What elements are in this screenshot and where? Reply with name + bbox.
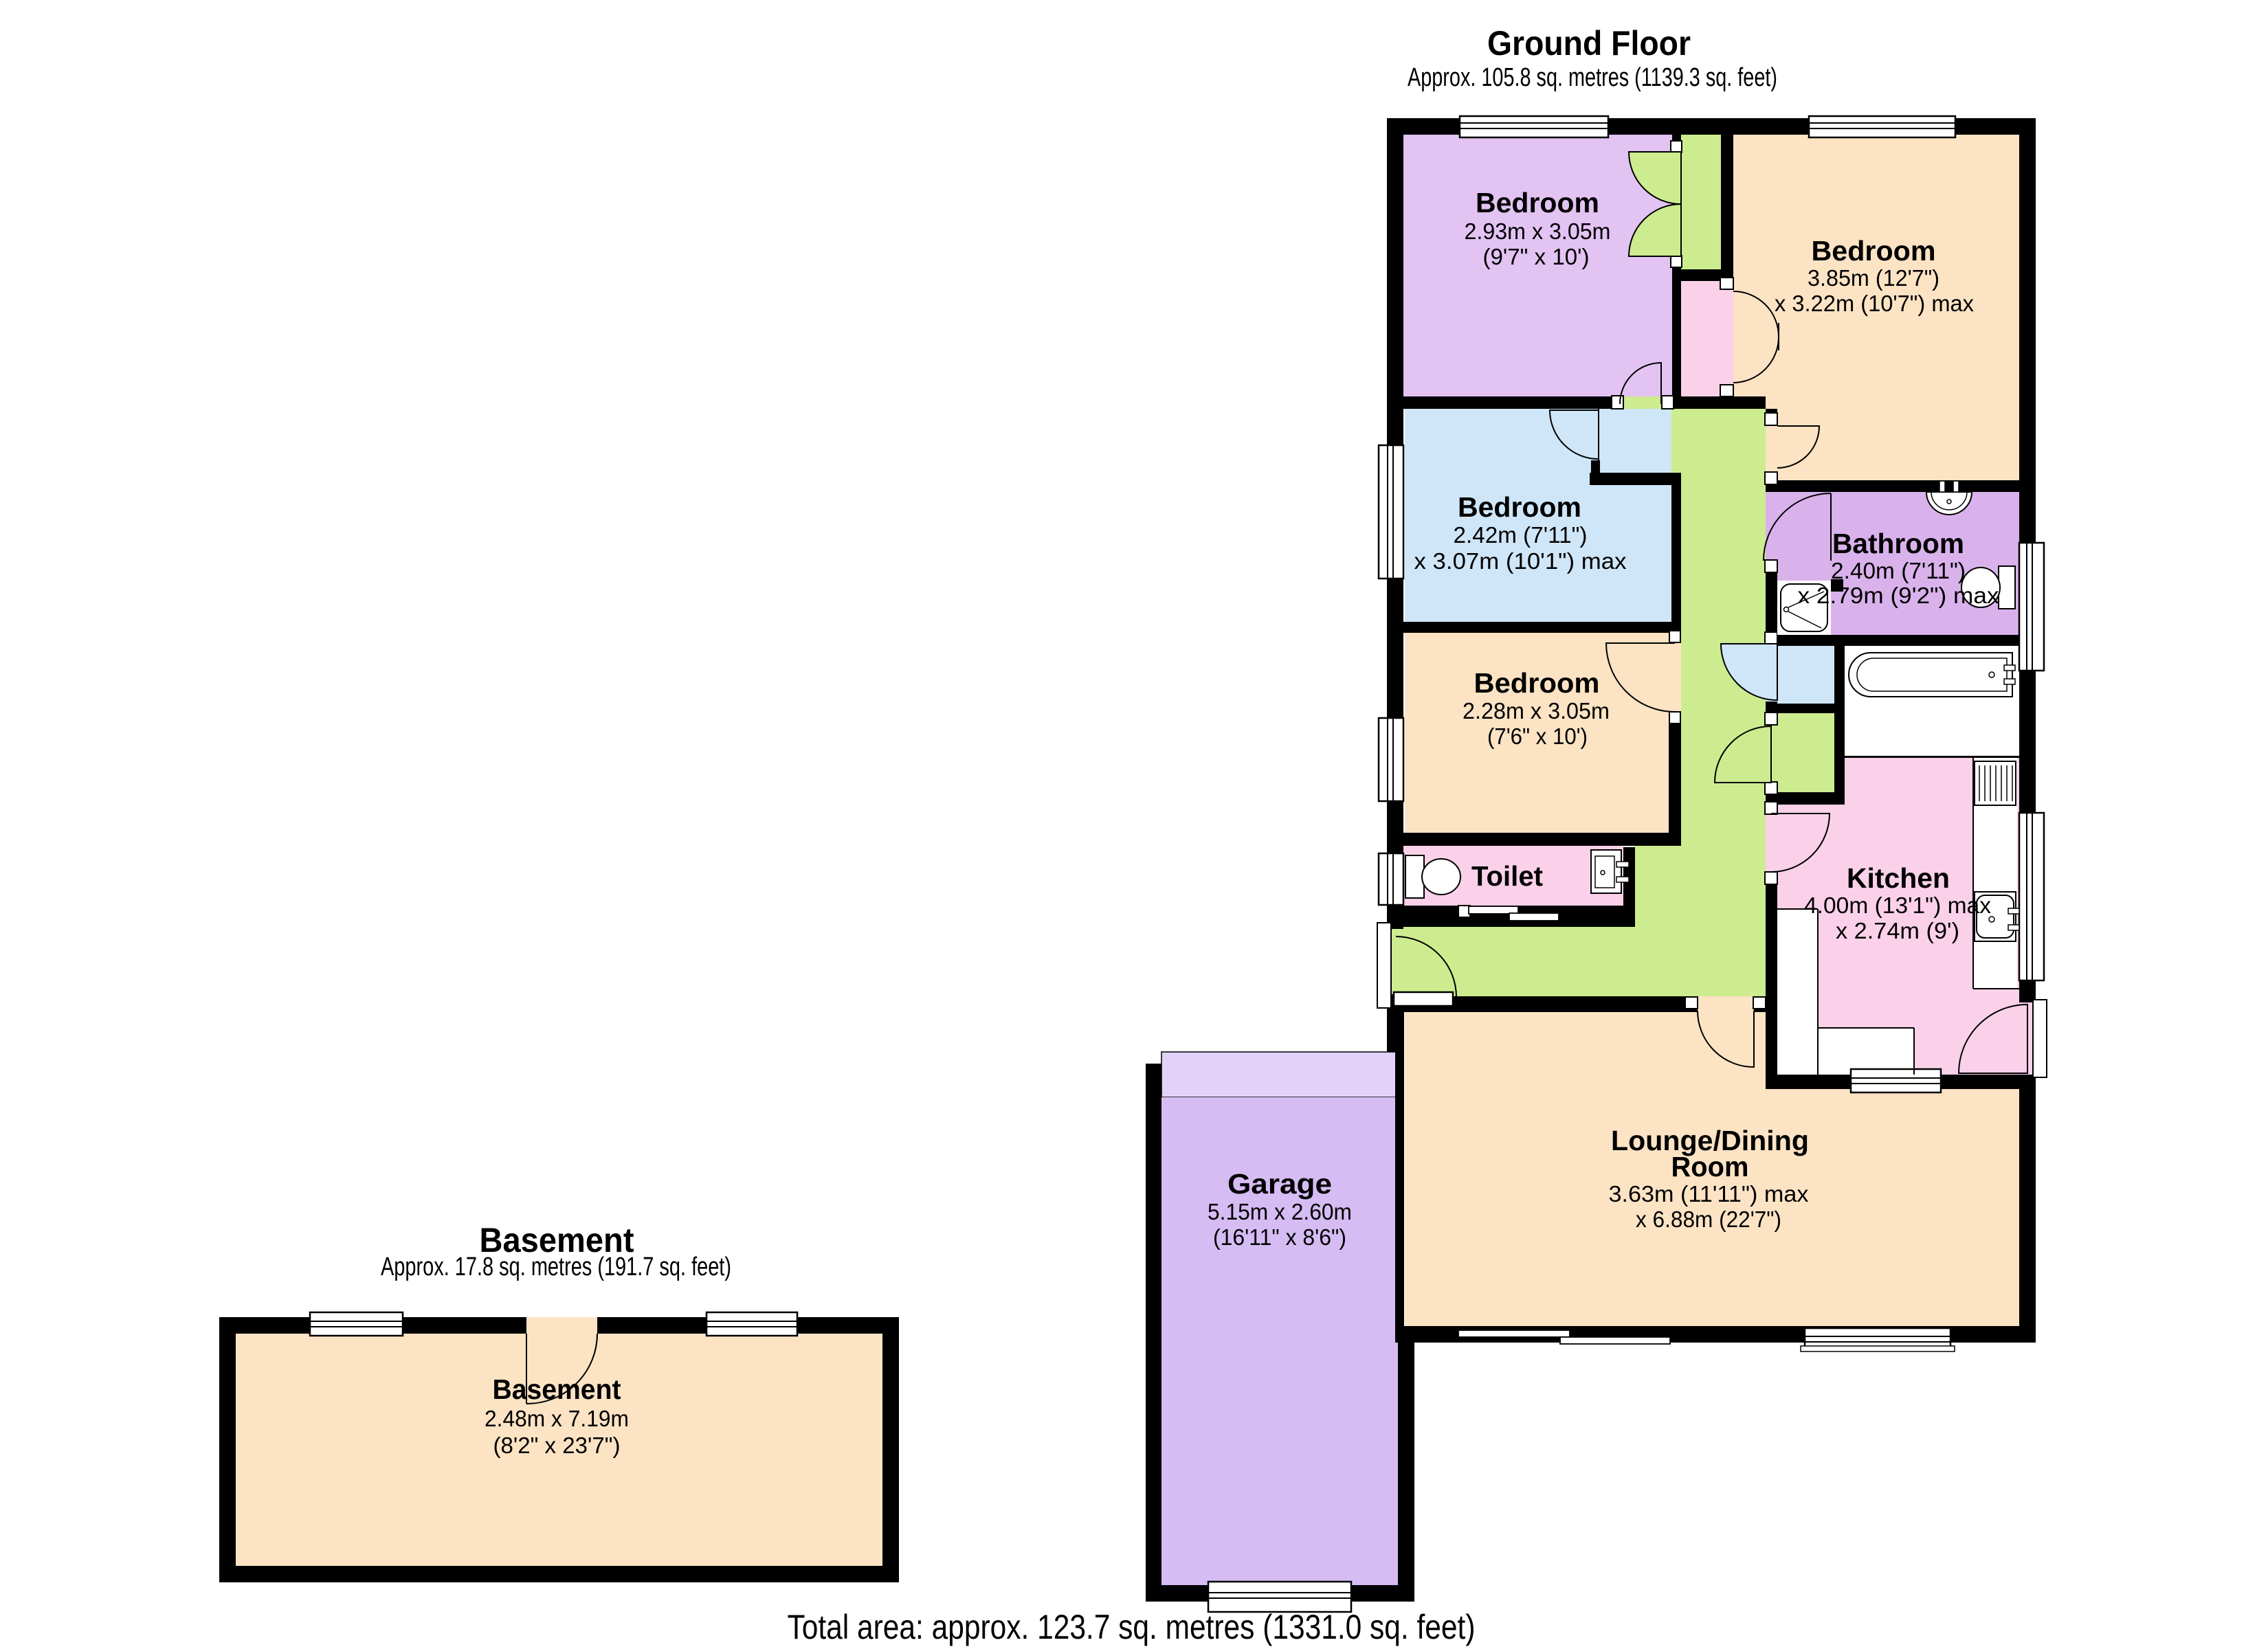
svg-text:4.00m (13'1") max: 4.00m (13'1") max [1804,893,1992,918]
svg-text:x 3.07m (10'1") max: x 3.07m (10'1") max [1414,548,1627,574]
svg-text:3.85m (12'7"): 3.85m (12'7") [1808,265,1939,291]
svg-text:x 6.88m (22'7"): x 6.88m (22'7") [1636,1207,1781,1232]
svg-text:Bedroom: Bedroom [1812,235,1936,267]
svg-text:Approx. 105.8 sq. metres (1139: Approx. 105.8 sq. metres (1139.3 sq. fee… [1408,63,1777,92]
svg-text:Toilet: Toilet [1471,860,1543,892]
svg-text:Bedroom: Bedroom [1476,187,1599,218]
svg-text:x 2.79m (9'2") max: x 2.79m (9'2") max [1798,583,2000,608]
svg-text:2.42m (7'11"): 2.42m (7'11") [1454,522,1588,548]
svg-text:3.63m (11'11") max: 3.63m (11'11") max [1609,1181,1810,1207]
svg-text:Approx. 17.8 sq. metres (191.7: Approx. 17.8 sq. metres (191.7 sq. feet) [381,1253,731,1281]
svg-text:2.93m x 3.05m: 2.93m x 3.05m [1465,218,1611,244]
svg-text:Total area: approx. 123.7 sq.: Total area: approx. 123.7 sq. metres (13… [788,1608,1476,1646]
svg-text:Bathroom: Bathroom [1832,528,1964,559]
svg-text:Bedroom: Bedroom [1474,667,1600,699]
svg-text:(16'11" x 8'6"): (16'11" x 8'6") [1213,1224,1346,1250]
svg-text:5.15m x 2.60m: 5.15m x 2.60m [1208,1199,1352,1224]
svg-text:Kitchen: Kitchen [1847,862,1950,894]
svg-text:2.48m x 7.19m: 2.48m x 7.19m [485,1406,629,1431]
svg-text:Basement: Basement [493,1373,621,1405]
svg-text:Garage: Garage [1227,1168,1332,1200]
svg-text:Ground Floor: Ground Floor [1487,24,1691,63]
svg-text:(9'7" x 10'): (9'7" x 10') [1483,244,1590,269]
svg-text:(8'2" x 23'7"): (8'2" x 23'7") [493,1433,621,1458]
svg-text:x 2.74m (9'): x 2.74m (9') [1836,918,1959,943]
svg-text:Bedroom: Bedroom [1458,491,1581,523]
svg-text:(7'6" x 10'): (7'6" x 10') [1487,723,1588,749]
svg-text:2.40m (7'11"): 2.40m (7'11") [1831,558,1966,583]
svg-text:2.28m x 3.05m: 2.28m x 3.05m [1463,698,1610,723]
svg-text:x 3.22m (10'7") max: x 3.22m (10'7") max [1775,291,1974,316]
svg-text:Room: Room [1671,1151,1749,1182]
